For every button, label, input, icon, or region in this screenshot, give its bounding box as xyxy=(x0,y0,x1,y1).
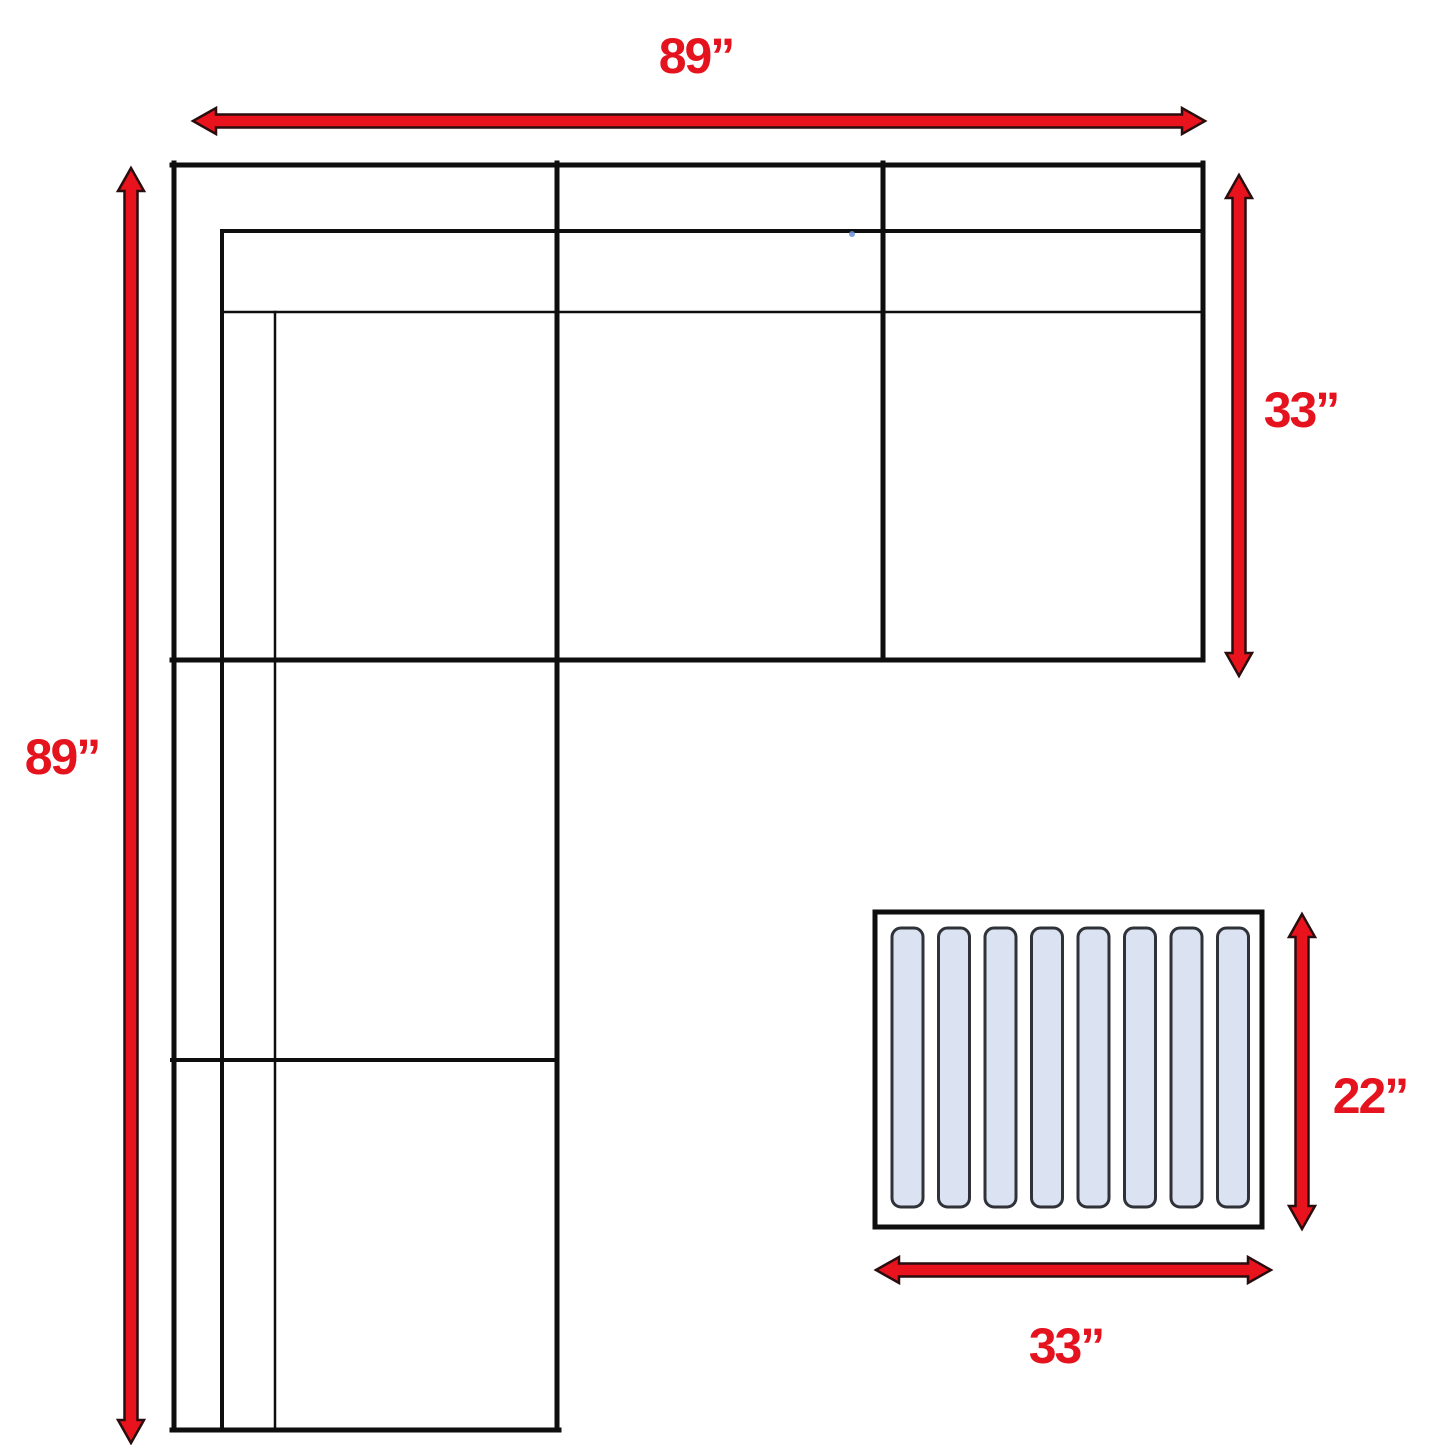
diagram-canvas xyxy=(0,0,1445,1445)
ottoman-slat xyxy=(985,928,1016,1207)
blue-speck-artifact xyxy=(849,231,855,237)
dimension-arrow-sofa-height xyxy=(118,168,144,1443)
dimension-label-sofa-width: 89” xyxy=(659,31,734,81)
ottoman-slat xyxy=(892,928,923,1207)
ottoman-slat xyxy=(1032,928,1063,1207)
dimension-arrows xyxy=(118,108,1315,1443)
dimension-arrow-sofa-width xyxy=(193,108,1205,134)
ottoman-body xyxy=(875,912,1262,1227)
dimension-arrow-chaise-depth xyxy=(1226,175,1252,676)
ottoman xyxy=(875,912,1262,1227)
ottoman-slat xyxy=(1171,928,1202,1207)
ottoman-slat xyxy=(1125,928,1156,1207)
dimension-label-ottoman-width: 33” xyxy=(1029,1321,1104,1371)
dimension-label-ottoman-height: 22” xyxy=(1333,1071,1408,1121)
furniture-dimension-diagram: 89” 89” 33” 22” 33” xyxy=(0,0,1445,1445)
ottoman-slat xyxy=(939,928,970,1207)
sectional-sofa-outline xyxy=(172,163,1203,1430)
ottoman-slat xyxy=(1078,928,1109,1207)
dimension-arrow-ottoman-width xyxy=(876,1257,1271,1283)
dimension-label-sofa-height: 89” xyxy=(25,732,100,782)
ottoman-slat xyxy=(1218,928,1249,1207)
dimension-label-chaise-depth: 33” xyxy=(1264,385,1339,435)
dimension-arrow-ottoman-height xyxy=(1289,914,1315,1229)
